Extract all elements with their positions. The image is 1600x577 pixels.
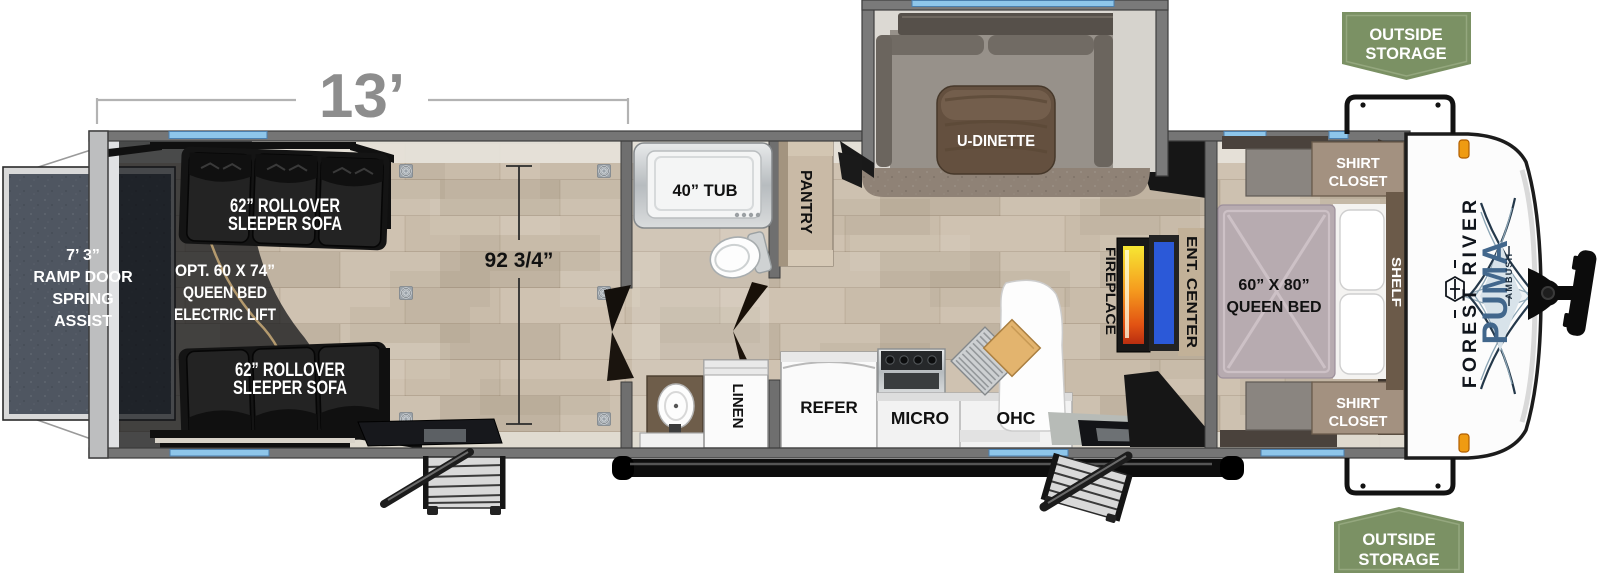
svg-text:U-DINETTE: U-DINETTE: [957, 133, 1035, 150]
svg-text:OHC: OHC: [997, 408, 1036, 428]
svg-text:ENT. CENTER: ENT. CENTER: [1183, 236, 1200, 348]
svg-text:OUTSIDE: OUTSIDE: [1369, 26, 1442, 44]
svg-text:CLOSET: CLOSET: [1329, 414, 1388, 430]
svg-text:AMBUSH: AMBUSH: [1504, 253, 1514, 300]
svg-text:STORAGE: STORAGE: [1358, 551, 1439, 569]
svg-text:RAMP DOOR: RAMP DOOR: [33, 269, 133, 286]
svg-text:SPRING: SPRING: [52, 291, 113, 308]
svg-text:FOREST RIVER: FOREST RIVER: [1459, 196, 1481, 388]
svg-text:LINEN: LINEN: [729, 384, 746, 429]
svg-text:SHIRT: SHIRT: [1336, 156, 1380, 172]
svg-text:60” X 80”: 60” X 80”: [1238, 277, 1309, 294]
svg-text:7’ 3”: 7’ 3”: [66, 247, 100, 264]
svg-text:QUEEN BED: QUEEN BED: [183, 283, 267, 302]
svg-text:ASSIST: ASSIST: [54, 313, 112, 330]
svg-text:REFER: REFER: [800, 398, 858, 417]
svg-text:13’: 13’: [319, 62, 405, 131]
svg-text:SLEEPER SOFA: SLEEPER SOFA: [228, 214, 342, 235]
svg-text:CLOSET: CLOSET: [1329, 174, 1388, 190]
svg-text:MICRO: MICRO: [891, 408, 949, 428]
svg-text:QUEEN BED: QUEEN BED: [1226, 299, 1321, 316]
svg-text:ELECTRIC LIFT: ELECTRIC LIFT: [174, 305, 276, 324]
svg-text:SHELF: SHELF: [1389, 257, 1404, 307]
svg-text:OPT. 60 X 74”: OPT. 60 X 74”: [175, 261, 275, 280]
svg-text:92 3/4”: 92 3/4”: [485, 249, 554, 272]
svg-text:FIREPLACE: FIREPLACE: [1103, 247, 1119, 335]
svg-text:40” TUB: 40” TUB: [672, 182, 737, 200]
svg-text:OUTSIDE: OUTSIDE: [1362, 531, 1435, 549]
svg-text:SLEEPER SOFA: SLEEPER SOFA: [233, 378, 347, 399]
svg-text:PANTRY: PANTRY: [797, 170, 814, 234]
svg-text:SHIRT: SHIRT: [1336, 396, 1380, 412]
svg-text:STORAGE: STORAGE: [1365, 45, 1446, 63]
